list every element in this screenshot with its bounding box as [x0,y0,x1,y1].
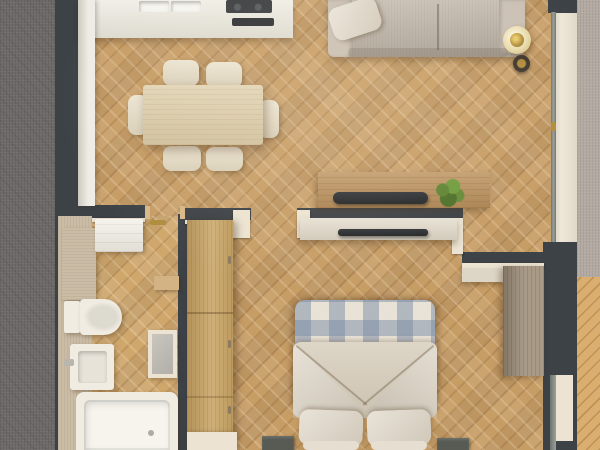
cooktop [226,0,272,13]
nightstand-right [437,438,469,450]
potted-plant [433,178,465,208]
washbasin-faucet [64,359,74,366]
bathroom-door-jamb-left [145,206,150,219]
exterior-ground [0,0,55,450]
wall-cap-b [233,210,250,238]
nightstand-left [262,436,294,450]
kitchen-sink-basin-2 [171,1,201,12]
sofa-cushion-seam [437,4,439,50]
tv-living [333,192,428,204]
kitchen-sink-basin-1 [139,1,169,12]
bedroom-window-frame [556,375,573,441]
bed-folded-duvet [293,342,437,418]
floor-lamp-bulb [510,33,524,47]
dining-chair-bottom-1 [163,146,201,171]
wardrobe-handle-1 [228,256,231,264]
sofa-front-edge [348,48,508,57]
bathtub-drain [148,430,154,436]
dining-table [143,85,263,145]
washbasin-bowl [78,351,107,383]
bathroom-door-jamb-right [180,206,185,219]
wardrobe-divider [187,312,233,314]
bathroom-mirror [148,330,177,378]
floor-lamp-base [513,55,530,72]
tv-bedroom [338,229,428,236]
toilet [80,299,122,335]
bathtub [76,392,178,450]
floorplan-scene [0,0,600,450]
bed-small-pillow-left [303,441,359,450]
hallway-wardrobe [187,220,233,432]
washbasin [70,344,114,390]
wall-segment-a [92,205,145,218]
kitchen-counter-left-run [78,0,95,206]
balcony-floor [577,0,600,277]
bed-small-pillow-right [371,441,427,450]
sofa-throw-pillow [326,0,384,43]
media-wall [297,208,463,218]
bedroom-white-shelf [462,268,504,282]
sofa [328,0,525,57]
bathroom-mirror-glass [152,334,173,374]
wardrobe-handle-2 [228,340,231,348]
wardrobe-handle-3 [228,406,231,414]
bathtub-interior [84,400,170,450]
terrace-floor [577,277,600,450]
bathroom-wall-shelf [154,276,179,290]
toilet-tank [64,301,80,333]
towel-rail [150,220,166,225]
hallway-dresser [187,432,237,450]
washer-cabinet [95,219,143,252]
bedroom-window-glass [550,375,556,450]
balcony-door-handle [551,122,556,131]
floor-lamp [503,26,531,54]
dining-chair-bottom-2 [206,147,243,171]
bathroom-cabinet [62,228,96,300]
wardrobe-divider-2 [187,396,233,398]
bedroom-top-wall [462,252,544,263]
extractor-vent [232,18,274,26]
dining-chair-top-1 [163,60,199,86]
bedroom-desk-cabinet [503,266,544,376]
